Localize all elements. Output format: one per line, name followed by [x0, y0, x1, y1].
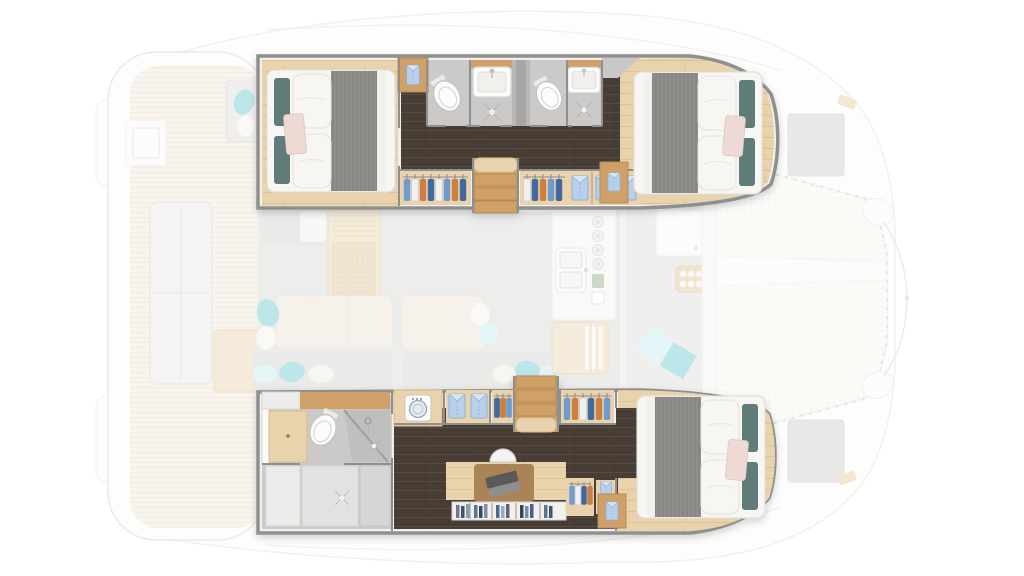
- vanity-mirror: [262, 409, 269, 464]
- port-wardrobe-aft: [400, 171, 471, 205]
- floor-plan-svg: Catamaran yacht floor plan — 3-cabin own…: [0, 0, 1024, 576]
- bathroom-door-panel-b: [302, 466, 358, 526]
- stbd-hanging-rail: [492, 390, 514, 423]
- galley-island: [552, 322, 608, 374]
- foredeck-hatch-starboard: [788, 420, 844, 482]
- washbasin-icon-2: [568, 67, 600, 93]
- folded-shirt-icon: [407, 65, 420, 84]
- bathroom-door-panel-a: [266, 466, 300, 526]
- cockpit-cushion-white: [237, 115, 255, 137]
- port-fwd-double-bed: [634, 72, 762, 194]
- stbd-shirt-shelf: [446, 390, 490, 423]
- galley-sink: [556, 248, 588, 292]
- stbd-wardrobe: [560, 390, 614, 423]
- bathroom-door-panel-c: [360, 466, 390, 526]
- dining-table: [328, 210, 380, 300]
- saloon-front-bulkhead: [620, 198, 626, 396]
- owners-double-bed: [637, 396, 765, 518]
- sofa-cushion-teal-2: [478, 323, 498, 345]
- port-hull: [258, 56, 778, 213]
- owners-nightstand: [598, 494, 626, 528]
- port-technical-compartment: [512, 60, 530, 126]
- bookshelf: [452, 502, 566, 520]
- stbd-companionway-stairs: [514, 376, 558, 432]
- laundry-cabinet: [394, 390, 442, 426]
- sofa-cushion-white-2: [470, 302, 490, 326]
- folded-shirt-icon-3: [606, 502, 618, 520]
- nav-station: [262, 204, 326, 246]
- port-aft-nightstand: [398, 58, 428, 92]
- table-rattan-top: [332, 242, 376, 298]
- sofa-cushion-white: [256, 326, 276, 350]
- forward-cockpit: [626, 198, 710, 396]
- aft-cockpit: [96, 52, 266, 540]
- helm-console: [126, 120, 166, 166]
- port-companionway-stairs: [473, 158, 518, 213]
- foredeck-hatch-port: [788, 114, 844, 176]
- transom-bench: [150, 202, 212, 384]
- saloon: [252, 198, 626, 396]
- port-aft-double-bed: [267, 70, 395, 192]
- washing-machine-icon: [405, 395, 431, 421]
- folded-shirt-icon-2: [608, 173, 620, 191]
- foredeck-seat-locker: [656, 210, 706, 256]
- office-wardrobe: [566, 478, 594, 516]
- starboard-hull: [258, 376, 775, 533]
- port-wardrobe-fwd: [520, 171, 568, 205]
- saloon-chaise-aft: [252, 352, 392, 390]
- port-corridor-floor-a: [401, 92, 427, 170]
- port-fwd-nightstand: [600, 162, 628, 203]
- washbasin-icon: [473, 67, 511, 97]
- saloon-sofa: [254, 296, 498, 350]
- bathroom-lockers: [300, 392, 390, 409]
- yacht-floor-plan: Catamaran yacht floor plan — 3-cabin own…: [0, 0, 1024, 576]
